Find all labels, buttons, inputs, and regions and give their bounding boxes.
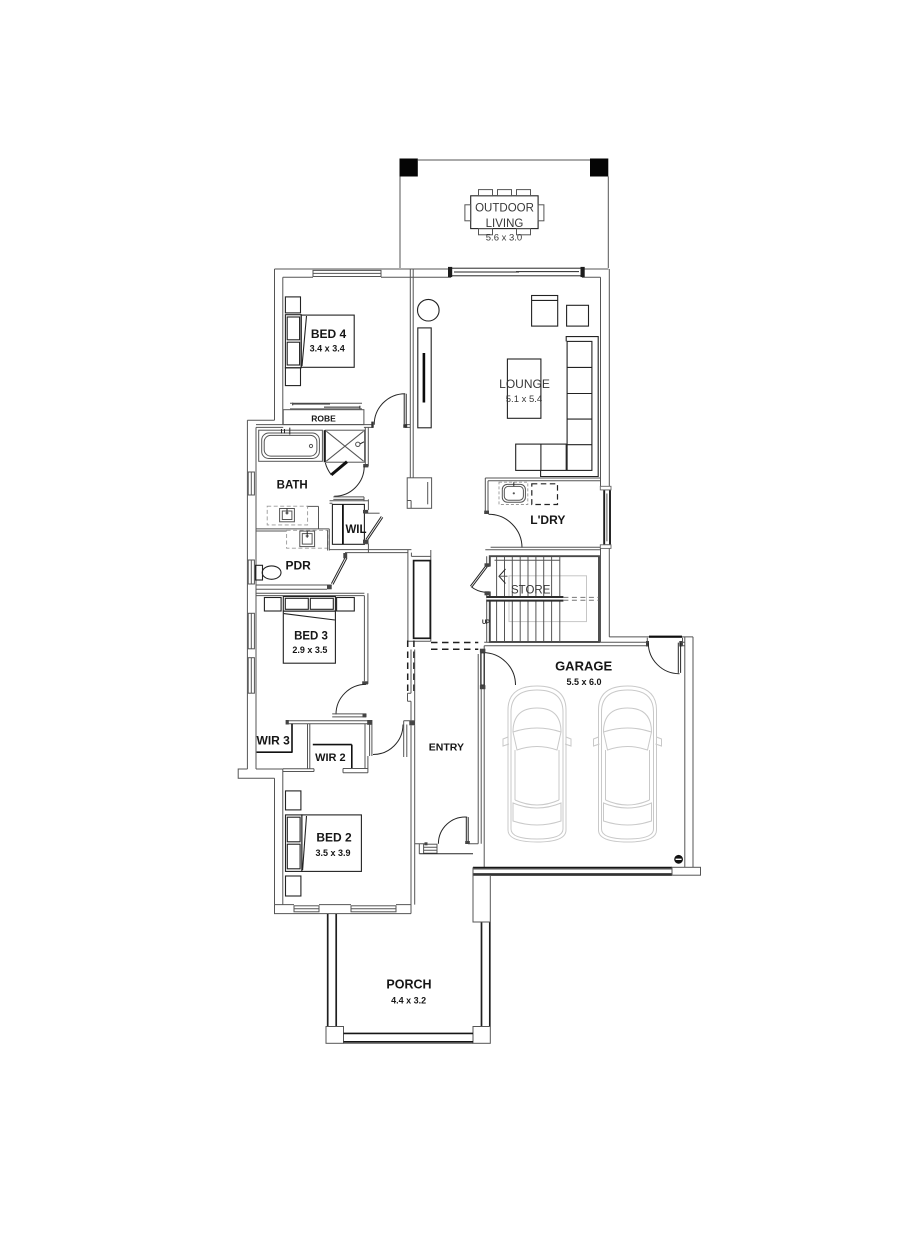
svg-text:PORCH: PORCH bbox=[386, 977, 431, 991]
svg-text:WIR 2: WIR 2 bbox=[315, 752, 346, 764]
svg-text:BATH: BATH bbox=[277, 479, 308, 491]
svg-text:BED 3: BED 3 bbox=[294, 631, 328, 643]
svg-text:4.4 x 3.2: 4.4 x 3.2 bbox=[391, 995, 426, 1005]
svg-text:L'DRY: L'DRY bbox=[530, 513, 565, 527]
svg-text:UP: UP bbox=[482, 620, 490, 626]
svg-text:LIVING: LIVING bbox=[486, 218, 524, 230]
svg-text:OUTDOOR: OUTDOOR bbox=[475, 203, 534, 215]
svg-text:WIL: WIL bbox=[345, 524, 366, 536]
svg-text:2.9 x 3.5: 2.9 x 3.5 bbox=[292, 645, 327, 655]
svg-text:BED 2: BED 2 bbox=[316, 831, 352, 845]
svg-text:3.5 x 3.9: 3.5 x 3.9 bbox=[315, 848, 350, 858]
svg-text:ROBE: ROBE bbox=[311, 413, 336, 423]
svg-text:3.4 x 3.4: 3.4 x 3.4 bbox=[310, 344, 345, 354]
svg-text:PDR: PDR bbox=[286, 559, 312, 573]
svg-text:LOUNGE: LOUNGE bbox=[499, 377, 550, 391]
svg-text:5.1 x 5.4: 5.1 x 5.4 bbox=[506, 394, 542, 405]
svg-text:GARAGE: GARAGE bbox=[555, 658, 612, 673]
svg-text:BED 4: BED 4 bbox=[311, 327, 347, 341]
svg-text:5.6 x 3.0: 5.6 x 3.0 bbox=[486, 233, 522, 244]
svg-text:WIR 3: WIR 3 bbox=[257, 733, 291, 747]
svg-text:STORE: STORE bbox=[511, 584, 551, 596]
svg-text:ENTRY: ENTRY bbox=[429, 741, 464, 753]
svg-text:5.5 x 6.0: 5.5 x 6.0 bbox=[566, 677, 601, 687]
